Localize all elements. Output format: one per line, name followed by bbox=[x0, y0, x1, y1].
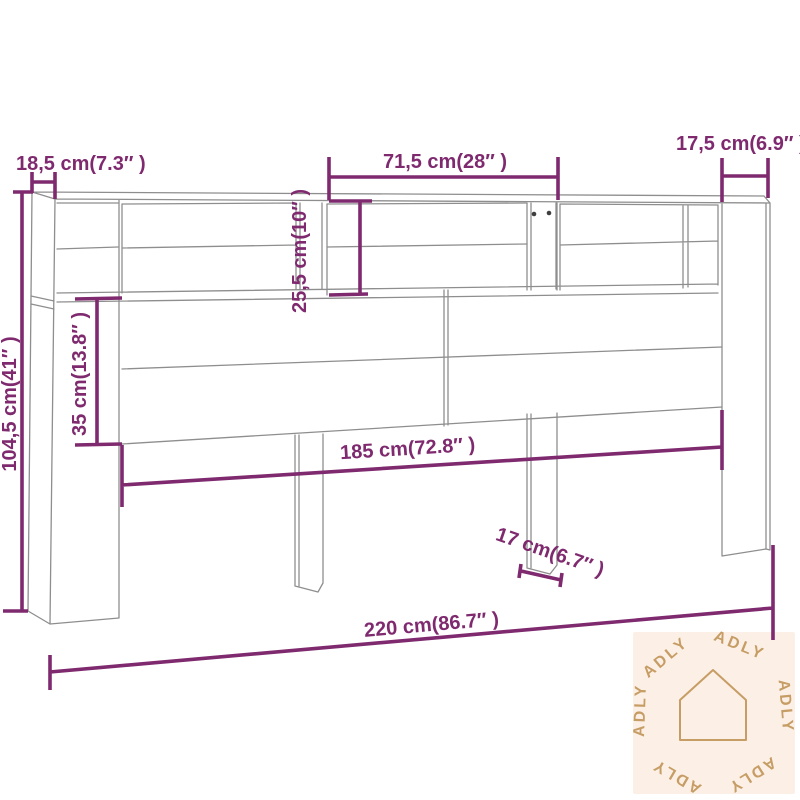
dimension-label: 25,5 cm(10″ ) bbox=[289, 189, 311, 313]
dimension-panel-height: 35 cm(13.8″ ) bbox=[69, 298, 122, 445]
dimension-label: 17,5 cm(6.9″ ) bbox=[676, 133, 800, 155]
dimension-right-column-width: 17,5 cm(6.9″ ) bbox=[676, 133, 800, 202]
diagram-canvas: ADLY ADLY ADLY ADLY ADLY ADLY 18,5 cm(7.… bbox=[0, 0, 800, 800]
shelf-row bbox=[57, 203, 718, 302]
cam-hole-left bbox=[532, 212, 537, 217]
cam-holes bbox=[532, 211, 552, 217]
dimension-label: 185 cm(72.8″ ) bbox=[339, 434, 475, 464]
headboard-line-drawing bbox=[28, 192, 770, 624]
headboard-panels bbox=[122, 290, 722, 444]
dimension-label: 104,5 cm(41″ ) bbox=[0, 336, 21, 471]
dimension-line bbox=[329, 201, 372, 295]
diagram-page: ADLY ADLY ADLY ADLY ADLY ADLY 18,5 cm(7.… bbox=[0, 0, 800, 800]
watermark: ADLY ADLY ADLY ADLY ADLY ADLY bbox=[631, 628, 796, 797]
dimension-label: 35 cm(13.8″ ) bbox=[69, 312, 91, 436]
cam-hole-right bbox=[547, 211, 552, 216]
cabinet-outline bbox=[28, 192, 770, 624]
dimension-label: 18,5 cm(7.3″ ) bbox=[16, 153, 146, 175]
watermark-brand: ADLY bbox=[631, 683, 650, 738]
dimension-inner-width: 185 cm(72.8″ ) bbox=[122, 410, 722, 507]
dimension-label: 17 cm(6.7″ ) bbox=[493, 524, 607, 582]
dimension-shelf-height: 25,5 cm(10″ ) bbox=[289, 189, 372, 313]
dimension-label: 71,5 cm(28″ ) bbox=[383, 151, 507, 173]
dimension-middle-compartment-width: 71,5 cm(28″ ) bbox=[329, 151, 558, 200]
dimension-leg-width: 17 cm(6.7″ ) bbox=[493, 524, 607, 587]
